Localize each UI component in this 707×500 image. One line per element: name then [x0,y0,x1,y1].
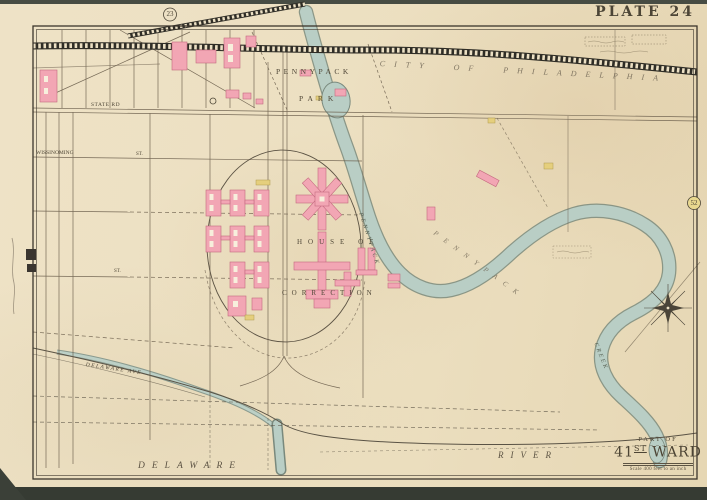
shore-stream [57,352,281,470]
street-grid [33,30,700,468]
scale-note: Scale 400 feet to an inch [611,467,705,472]
pennypack-park-label-line2: PARK [299,95,338,103]
plate-ref-circles [164,8,701,210]
house-of-correction-label-line2: CORRECTION [282,290,377,297]
street-abbrev-2: ST. [114,269,121,274]
compass-rose-icon [644,284,692,332]
delaware-river-label-word2: RIVER [498,451,558,460]
delaware-river-label-word1: DELAWARE [138,462,242,472]
street-abbrev-1: ST. [136,152,143,157]
ward-cartouche-part-of: PART OF [611,436,705,443]
buildings-pink [40,36,499,316]
pennypack-park-label-line1: PENNYPACK [276,68,352,76]
wissinoming-street-label: WISSINOMING [36,151,74,157]
adjacent-plate-right: 52 [687,200,701,207]
cartouche-rule [623,463,693,466]
ward-cartouche: PART OF 41ST WARD Scale 400 feet to an i… [611,436,705,472]
ward-cartouche-title: 41ST WARD [611,444,705,461]
ward-word: WARD [652,445,702,461]
state-road-label: STATE RD [91,103,120,109]
ward-ordinal: ST [634,444,647,453]
plate-title: PLATE 24 [560,5,695,19]
adjacent-plate-top: 23 [163,11,177,18]
page-edge-bottom [0,487,707,500]
atlas-plate-screenshot: PLATE 24 23 52 CITY OF PHILADELPHIA PENN… [0,0,707,500]
ward-number: 41 [614,445,634,461]
